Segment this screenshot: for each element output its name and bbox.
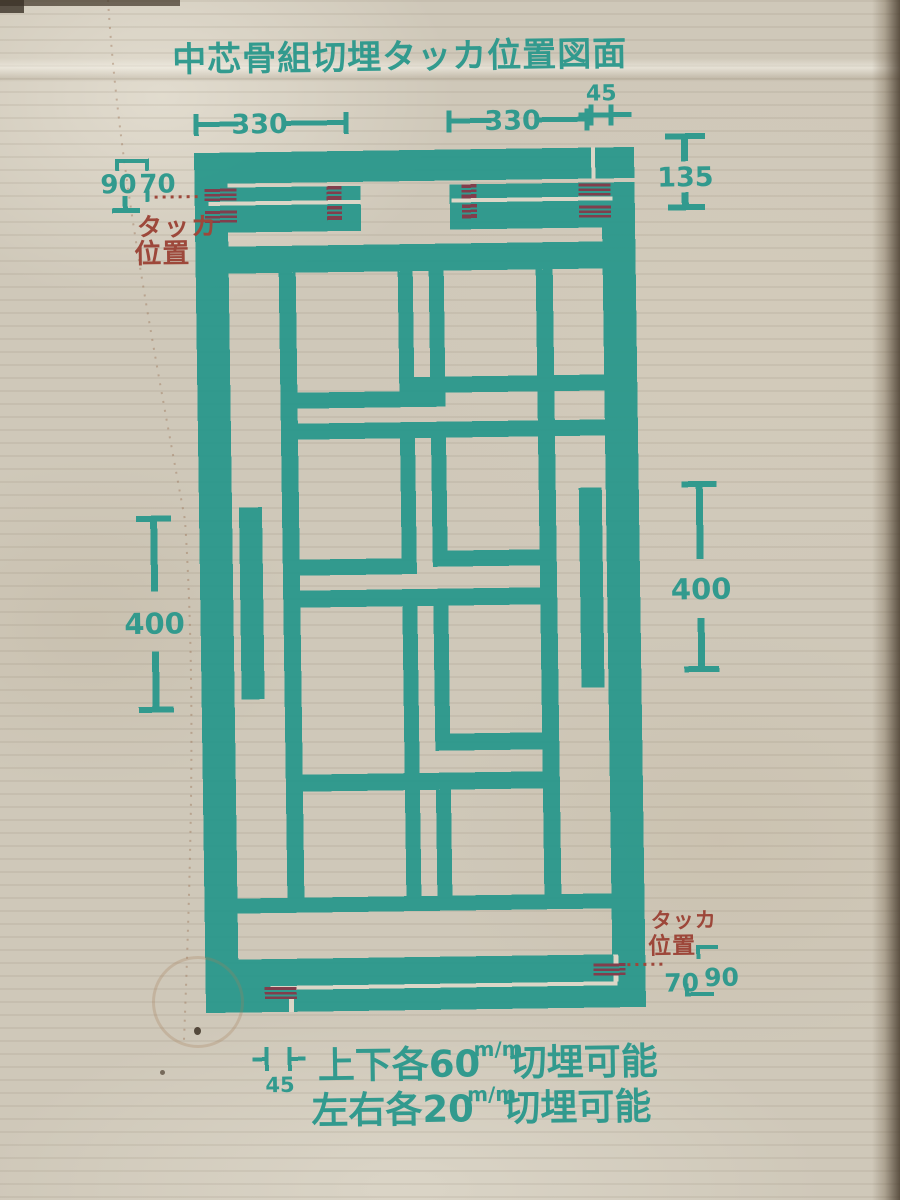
photo-top-edge-shadow <box>0 0 180 6</box>
center-left-mullion-seg1 <box>398 271 415 404</box>
crossbar-rung1-left <box>280 391 445 409</box>
center-right-mullion-seg3 <box>433 605 450 735</box>
red-ink-group: タッカ 位置 タッカ 位置 <box>134 188 718 973</box>
side-strip-right <box>579 487 605 687</box>
dim-90-bottom-label: 90 <box>704 963 739 992</box>
dim-330-left <box>193 112 348 136</box>
photo-right-edge-shadow <box>872 0 900 1200</box>
lattice-bottom-rail <box>237 893 611 913</box>
dim-135-right <box>665 133 706 211</box>
note-line2-prefix: 左右各20 <box>311 1087 474 1132</box>
center-right-mullion-seg2 <box>431 438 448 558</box>
dim-330-right-label: 330 <box>484 105 541 137</box>
dim-70-left-label: 70 <box>139 169 176 200</box>
staple-mark <box>205 211 237 223</box>
stain-dot <box>160 1070 165 1075</box>
crossbar-rung2-full <box>283 587 557 608</box>
cut-tick-bottom-left <box>289 990 294 1012</box>
stapler-position-label-top-line2: 位置 <box>134 237 190 270</box>
staple-stripes-group <box>205 186 626 998</box>
leader-dots-top <box>155 195 198 199</box>
stain-dot <box>194 1027 201 1035</box>
dim-330-left-label: 330 <box>231 109 288 141</box>
inner-right-vertical <box>536 269 562 895</box>
staple-mark <box>461 184 476 198</box>
cardboard-crease-line <box>0 0 900 1200</box>
center-left-mullion-seg4 <box>405 790 421 897</box>
staple-mark <box>593 963 625 975</box>
dim-70-bottom-label: 70 <box>664 968 699 997</box>
dim-45-top <box>578 104 631 126</box>
staple-mark <box>579 205 611 217</box>
frame-top-right-cap <box>595 147 634 179</box>
staple-mark <box>205 189 237 201</box>
dim-400-left-label: 400 <box>124 606 185 641</box>
dim-90-bottom-bracket <box>684 945 719 996</box>
staple-mark <box>462 204 477 218</box>
cut-line-bottom <box>271 981 618 990</box>
cut-lines-group <box>208 147 624 1013</box>
cut-tick-bottom-right <box>613 954 618 981</box>
dim-45-top-label: 45 <box>586 81 617 106</box>
frame-bottom-rail <box>205 954 646 1013</box>
center-right-mullion-seg4 <box>436 790 452 897</box>
cut-line-top-left <box>209 200 361 206</box>
dim-45-bottom-label: 45 <box>265 1073 295 1097</box>
dim-45-bottom <box>253 1047 306 1072</box>
joint-line-top-right <box>591 148 595 179</box>
dim-330-right <box>446 109 589 133</box>
frame-right-stile <box>601 182 646 1007</box>
cardboard-mottle-texture <box>0 0 900 1200</box>
crossbar-rung3-full <box>286 771 560 792</box>
cardboard-fold-crease <box>0 58 900 82</box>
staple-mark <box>265 987 297 999</box>
leader-dots-bottom <box>627 963 662 966</box>
photo-corner-shadow <box>0 0 24 13</box>
dim-70-left-tick <box>146 191 150 202</box>
dim-400-right <box>682 481 720 672</box>
center-right-mullion-seg1 <box>429 271 446 404</box>
frame-second-rail <box>228 241 602 273</box>
inner-left-vertical <box>279 273 305 899</box>
center-left-mullion-seg2 <box>400 438 417 560</box>
crossbar-rung2-right <box>433 549 557 567</box>
frame-top-tab-right <box>449 182 635 230</box>
cardboard-photo: 中芯骨組切埋タッカ位置図面 <box>0 0 900 1200</box>
staple-marks-group <box>205 182 626 1000</box>
staple-mark <box>327 206 342 220</box>
note-line1-unit: m/m <box>473 1037 522 1062</box>
frame-left-stile <box>194 153 239 1013</box>
cut-line-top-right <box>452 196 613 202</box>
crossbar-rung2-left <box>283 558 417 576</box>
note-line1-suffix: 切埋可能 <box>509 1040 658 1085</box>
dim-90-left <box>111 159 150 214</box>
stapler-position-diagram: 中芯骨組切埋タッカ位置図面 <box>0 0 900 1200</box>
note-line2-unit: m/m <box>467 1082 516 1107</box>
crossbar-rung3-right <box>435 732 559 751</box>
frame-top-tab-left <box>195 186 362 233</box>
note-line2-suffix: 切埋可能 <box>503 1085 652 1130</box>
staple-mark <box>326 186 341 200</box>
crossbar-rung1-right <box>399 374 604 393</box>
stapler-position-label-top-line1: タッカ <box>137 212 218 242</box>
dim-400-right-label: 400 <box>671 572 732 607</box>
staple-mark <box>578 183 610 195</box>
dim-400-left <box>136 515 174 712</box>
side-strip-left <box>239 507 265 699</box>
stapler-position-label-bottom-line1: タッカ <box>651 908 717 933</box>
center-left-mullion-seg3 <box>402 605 419 775</box>
stapler-position-label-bottom-line2: 位置 <box>648 932 696 960</box>
dim-135-right-label: 135 <box>657 162 714 194</box>
crease-path <box>108 0 191 1040</box>
crossbar-rung1-full <box>281 419 605 440</box>
frame-top-rail <box>194 148 591 185</box>
dim-90-left-label: 90 <box>100 170 137 201</box>
note-line1-prefix: 上下各60 <box>317 1042 480 1087</box>
cardboard-corrugation-texture <box>0 0 900 1200</box>
